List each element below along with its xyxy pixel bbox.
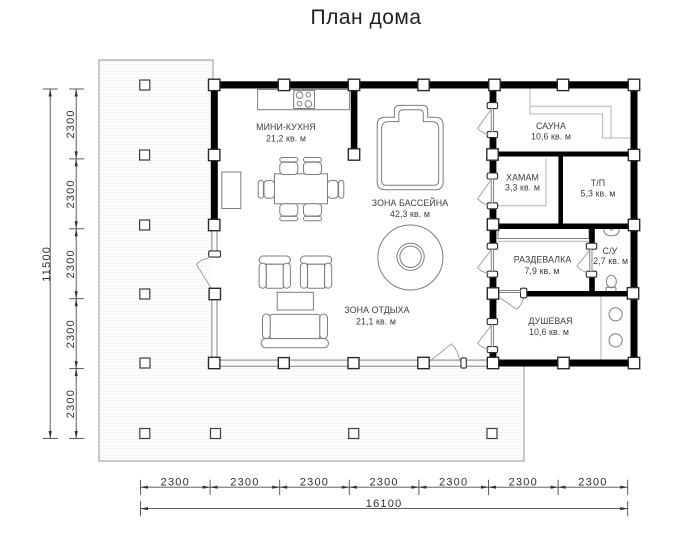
svg-text:7,9 кв. м: 7,9 кв. м [524, 266, 559, 276]
svg-text:16100: 16100 [366, 498, 403, 510]
svg-text:11500: 11500 [41, 246, 53, 282]
svg-text:2300: 2300 [439, 476, 468, 488]
svg-text:2300: 2300 [65, 319, 77, 348]
svg-text:Т/П: Т/П [591, 178, 605, 188]
svg-text:ДУШЕВАЯ: ДУШЕВАЯ [528, 316, 572, 326]
svg-text:2300: 2300 [230, 476, 259, 488]
svg-text:21,1 кв. м: 21,1 кв. м [356, 317, 396, 327]
svg-text:2300: 2300 [65, 389, 77, 418]
svg-text:5,3 кв. м: 5,3 кв. м [580, 189, 615, 199]
svg-text:10,6 кв. м: 10,6 кв. м [529, 327, 569, 337]
svg-text:21,2 кв. м: 21,2 кв. м [266, 134, 306, 144]
svg-text:ЗОНА ОТДЫХА: ЗОНА ОТДЫХА [344, 305, 409, 315]
svg-text:2,7 кв. м: 2,7 кв. м [593, 256, 628, 266]
svg-text:МИНИ-КУХНЯ: МИНИ-КУХНЯ [256, 122, 316, 132]
svg-text:2300: 2300 [300, 476, 329, 488]
svg-text:САУНА: САУНА [536, 121, 566, 131]
svg-text:С/У: С/У [603, 246, 618, 256]
svg-text:2300: 2300 [161, 476, 190, 488]
svg-text:ХАМАМ: ХАМАМ [506, 173, 539, 183]
svg-text:10,6 кв. м: 10,6 кв. м [531, 132, 571, 142]
svg-text:3,3 кв. м: 3,3 кв. м [505, 183, 540, 193]
svg-text:2300: 2300 [65, 109, 77, 138]
svg-text:42,3 кв. м: 42,3 кв. м [390, 209, 430, 219]
svg-text:План дома: План дома [310, 6, 421, 29]
svg-text:2300: 2300 [369, 476, 398, 488]
svg-text:2300: 2300 [578, 476, 607, 488]
svg-text:2300: 2300 [65, 179, 77, 208]
svg-text:ЗОНА БАССЕЙНА: ЗОНА БАССЕЙНА [372, 197, 448, 208]
svg-text:2300: 2300 [509, 476, 538, 488]
svg-text:2300: 2300 [65, 249, 77, 278]
svg-text:РАЗДЕВАЛКА: РАЗДЕВАЛКА [514, 255, 572, 265]
